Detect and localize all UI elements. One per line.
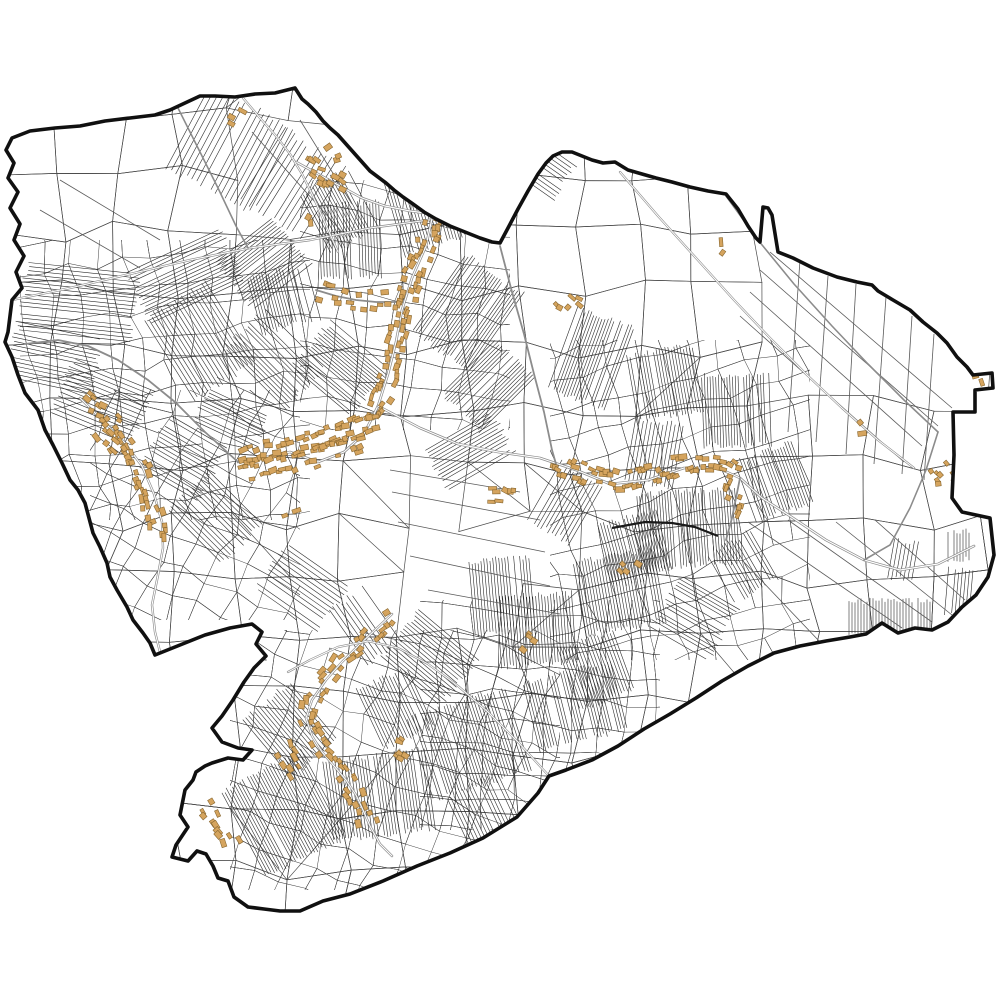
cadastral-map-figure: [0, 0, 1000, 1000]
cadastral-map-svg: [0, 0, 1000, 1000]
